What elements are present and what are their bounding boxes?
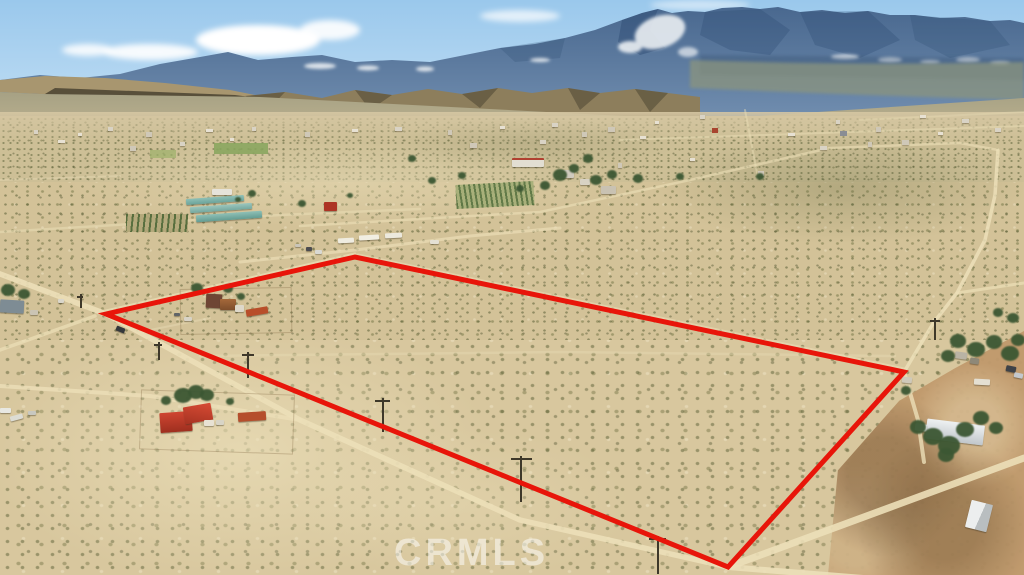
aerial-photo: CRMLS [0, 0, 1024, 575]
watermark-text: CRMLS [394, 532, 549, 575]
property-boundary [0, 0, 1024, 575]
boundary-polygon [106, 257, 904, 567]
